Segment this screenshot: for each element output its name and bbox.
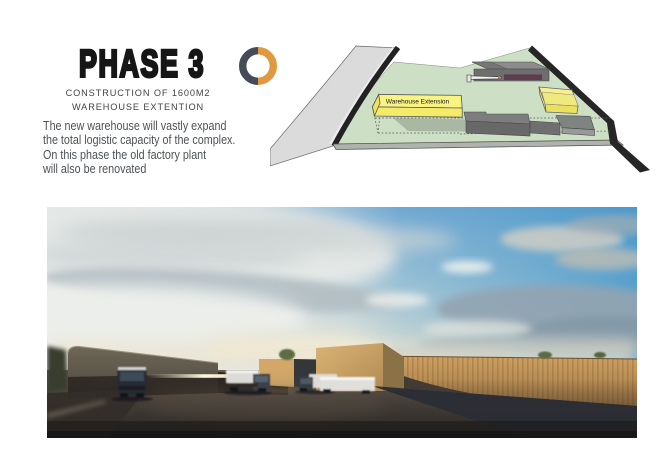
svg-text:Warehouse Extension: Warehouse Extension [386, 98, 450, 105]
